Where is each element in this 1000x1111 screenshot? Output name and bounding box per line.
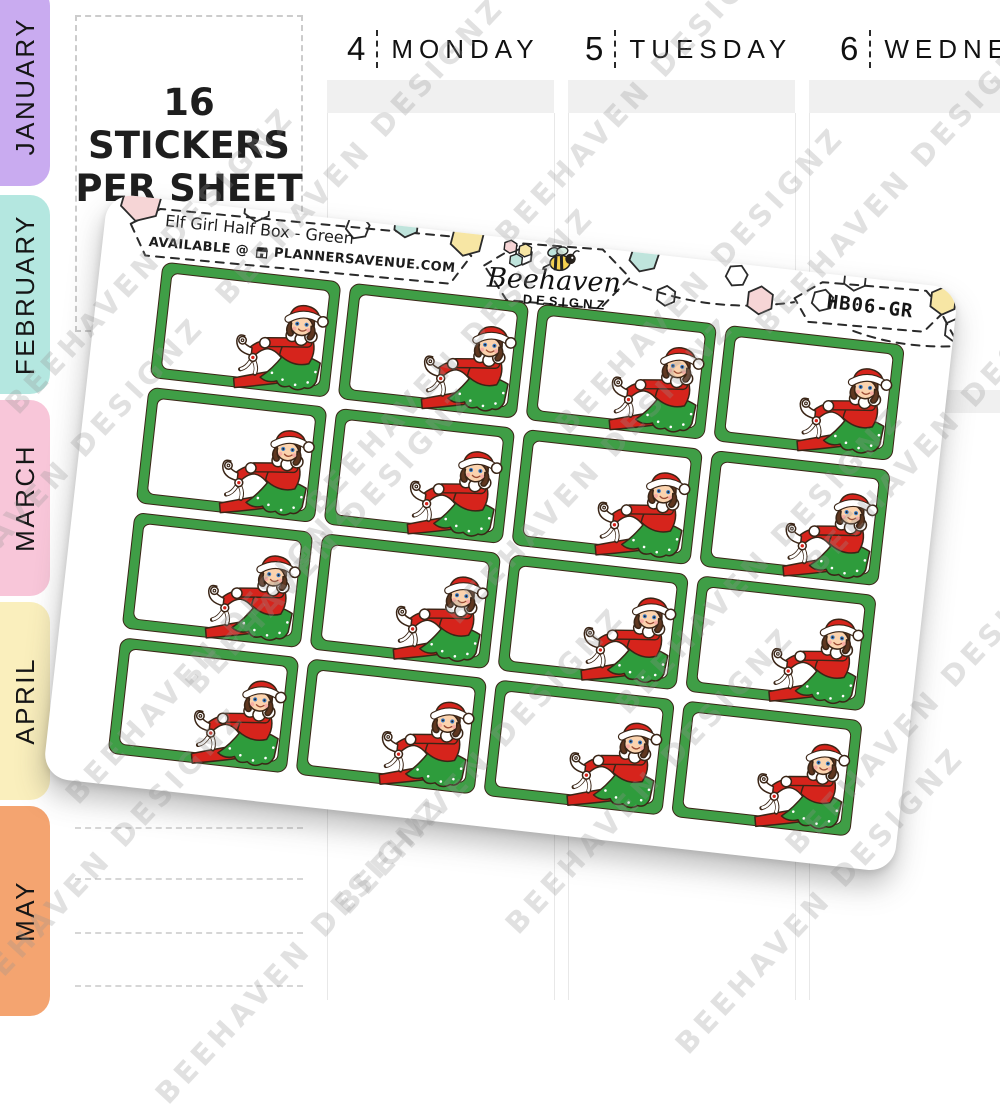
elf-girl-illustration bbox=[354, 692, 486, 799]
product-image: { "planner": { "months": [ {"label": "JA… bbox=[0, 0, 1000, 1000]
elf-girl-illustration bbox=[569, 462, 701, 569]
elf-girl-illustration bbox=[757, 483, 889, 590]
day-header-box bbox=[327, 80, 554, 113]
month-tab-label: JANUARY bbox=[10, 17, 41, 155]
half-box-sticker bbox=[295, 658, 487, 794]
elf-girl-illustration bbox=[382, 441, 514, 548]
day-number: 4 bbox=[347, 30, 365, 68]
watermark-text: BEEHAVEN DESIGNZ bbox=[149, 789, 452, 1110]
elf-girl-illustration bbox=[541, 713, 673, 820]
half-box-sticker bbox=[323, 408, 515, 544]
month-tab-february: FEBRUARY bbox=[0, 195, 50, 394]
day-name: TUESDAY bbox=[629, 34, 792, 65]
month-tab-label: FEBRUARY bbox=[10, 214, 41, 375]
elf-girl-illustration bbox=[194, 420, 326, 527]
elf-girl-illustration bbox=[208, 295, 340, 402]
day-header-box bbox=[809, 80, 1000, 113]
day-header-monday: 4MONDAY bbox=[347, 30, 540, 68]
half-box-sticker bbox=[150, 262, 342, 398]
elf-girl-illustration bbox=[555, 587, 687, 694]
day-name: WEDNESDAY bbox=[884, 34, 1000, 65]
half-box-sticker bbox=[671, 700, 863, 836]
sticker-count-promo: 16 STICKERS PER SHEET bbox=[70, 82, 308, 211]
elf-girl-illustration bbox=[368, 566, 500, 673]
day-header-box bbox=[568, 80, 795, 113]
ruled-line bbox=[75, 932, 303, 934]
elf-girl-illustration bbox=[396, 316, 528, 423]
day-separator bbox=[869, 30, 871, 68]
elf-girl-illustration bbox=[729, 734, 861, 841]
month-tab-march: MARCH bbox=[0, 400, 50, 596]
month-tab-january: JANUARY bbox=[0, 0, 50, 186]
storefront-icon bbox=[253, 244, 269, 259]
month-tab-label: MARCH bbox=[10, 444, 41, 552]
month-tab-may: MAY bbox=[0, 806, 50, 1016]
elf-girl-illustration bbox=[180, 545, 312, 652]
ruled-line bbox=[75, 985, 303, 987]
half-box-sticker bbox=[108, 637, 300, 773]
ruled-line bbox=[75, 878, 303, 880]
half-box-sticker bbox=[497, 554, 689, 690]
elf-girl-illustration bbox=[743, 609, 875, 716]
half-box-sticker bbox=[483, 679, 675, 815]
day-number: 5 bbox=[585, 30, 603, 68]
month-tab-april: APRIL bbox=[0, 602, 50, 800]
day-name: MONDAY bbox=[391, 34, 539, 65]
half-box-sticker bbox=[511, 429, 703, 565]
half-box-sticker bbox=[337, 283, 529, 419]
day-separator bbox=[376, 30, 378, 68]
half-box-sticker bbox=[713, 325, 905, 461]
day-separator bbox=[614, 30, 616, 68]
half-box-sticker bbox=[136, 387, 328, 523]
day-number: 6 bbox=[840, 30, 858, 68]
half-box-sticker bbox=[699, 450, 891, 586]
half-box-sticker bbox=[122, 512, 314, 648]
day-header-wednesday: 6WEDNESDAY bbox=[840, 30, 1000, 68]
promo-line1: 16 STICKERS bbox=[70, 82, 308, 168]
elf-girl-illustration bbox=[583, 337, 715, 444]
ruled-line bbox=[75, 827, 303, 829]
sticker-sheet: Elf Girl Half Box - Green AVAILABLE @ PL… bbox=[42, 193, 958, 873]
elf-girl-illustration bbox=[771, 358, 903, 465]
day-header-tuesday: 5TUESDAY bbox=[585, 30, 792, 68]
month-tab-label: MAY bbox=[10, 880, 41, 942]
half-box-sticker bbox=[685, 575, 877, 711]
half-box-sticker bbox=[525, 304, 717, 440]
elf-girl-illustration bbox=[166, 671, 298, 778]
half-box-sticker bbox=[309, 533, 501, 669]
month-tab-label: APRIL bbox=[10, 657, 41, 745]
